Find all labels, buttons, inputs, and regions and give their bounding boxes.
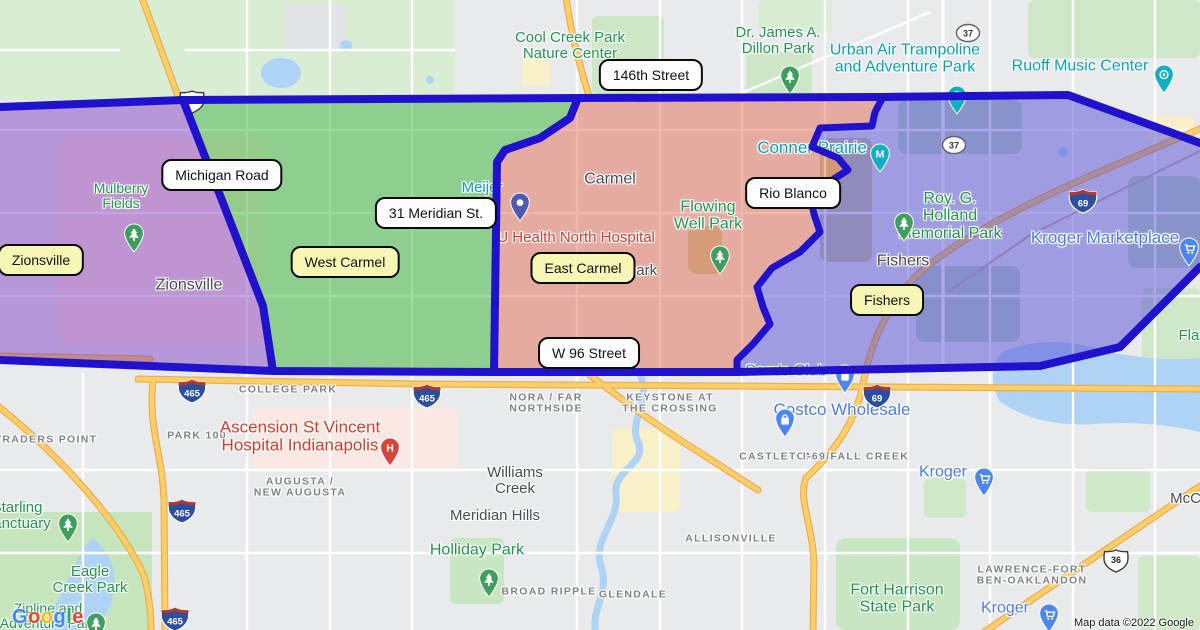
map-canvas[interactable]: ZionsvilleCarmelFishersWilliamsCreekMeri… bbox=[0, 0, 1200, 630]
callout-zionsville[interactable]: Zionsville bbox=[0, 244, 84, 276]
callouts-layer: 146th StreetMichigan Road31 Meridian St.… bbox=[0, 0, 1200, 630]
google-logo-letter: o bbox=[41, 606, 54, 628]
callout-michigan-road[interactable]: Michigan Road bbox=[161, 159, 282, 191]
google-logo-letter: o bbox=[28, 606, 41, 628]
callout-31-meridian-st-[interactable]: 31 Meridian St. bbox=[375, 197, 497, 229]
callout-146th-street[interactable]: 146th Street bbox=[599, 59, 703, 91]
google-logo-letter: g bbox=[54, 606, 67, 628]
google-logo-letter: e bbox=[72, 606, 84, 628]
google-logo-letter: G bbox=[12, 606, 28, 628]
callout-rio-blanco[interactable]: Rio Blanco bbox=[745, 177, 841, 209]
callout-w-96-street[interactable]: W 96 Street bbox=[538, 337, 640, 369]
callout-fishers[interactable]: Fishers bbox=[850, 284, 924, 316]
google-logo[interactable]: Google bbox=[12, 606, 84, 629]
map-attribution: Map data ©2022 Google bbox=[1074, 617, 1194, 629]
callout-east-carmel[interactable]: East Carmel bbox=[530, 252, 635, 284]
callout-west-carmel[interactable]: West Carmel bbox=[291, 246, 400, 278]
